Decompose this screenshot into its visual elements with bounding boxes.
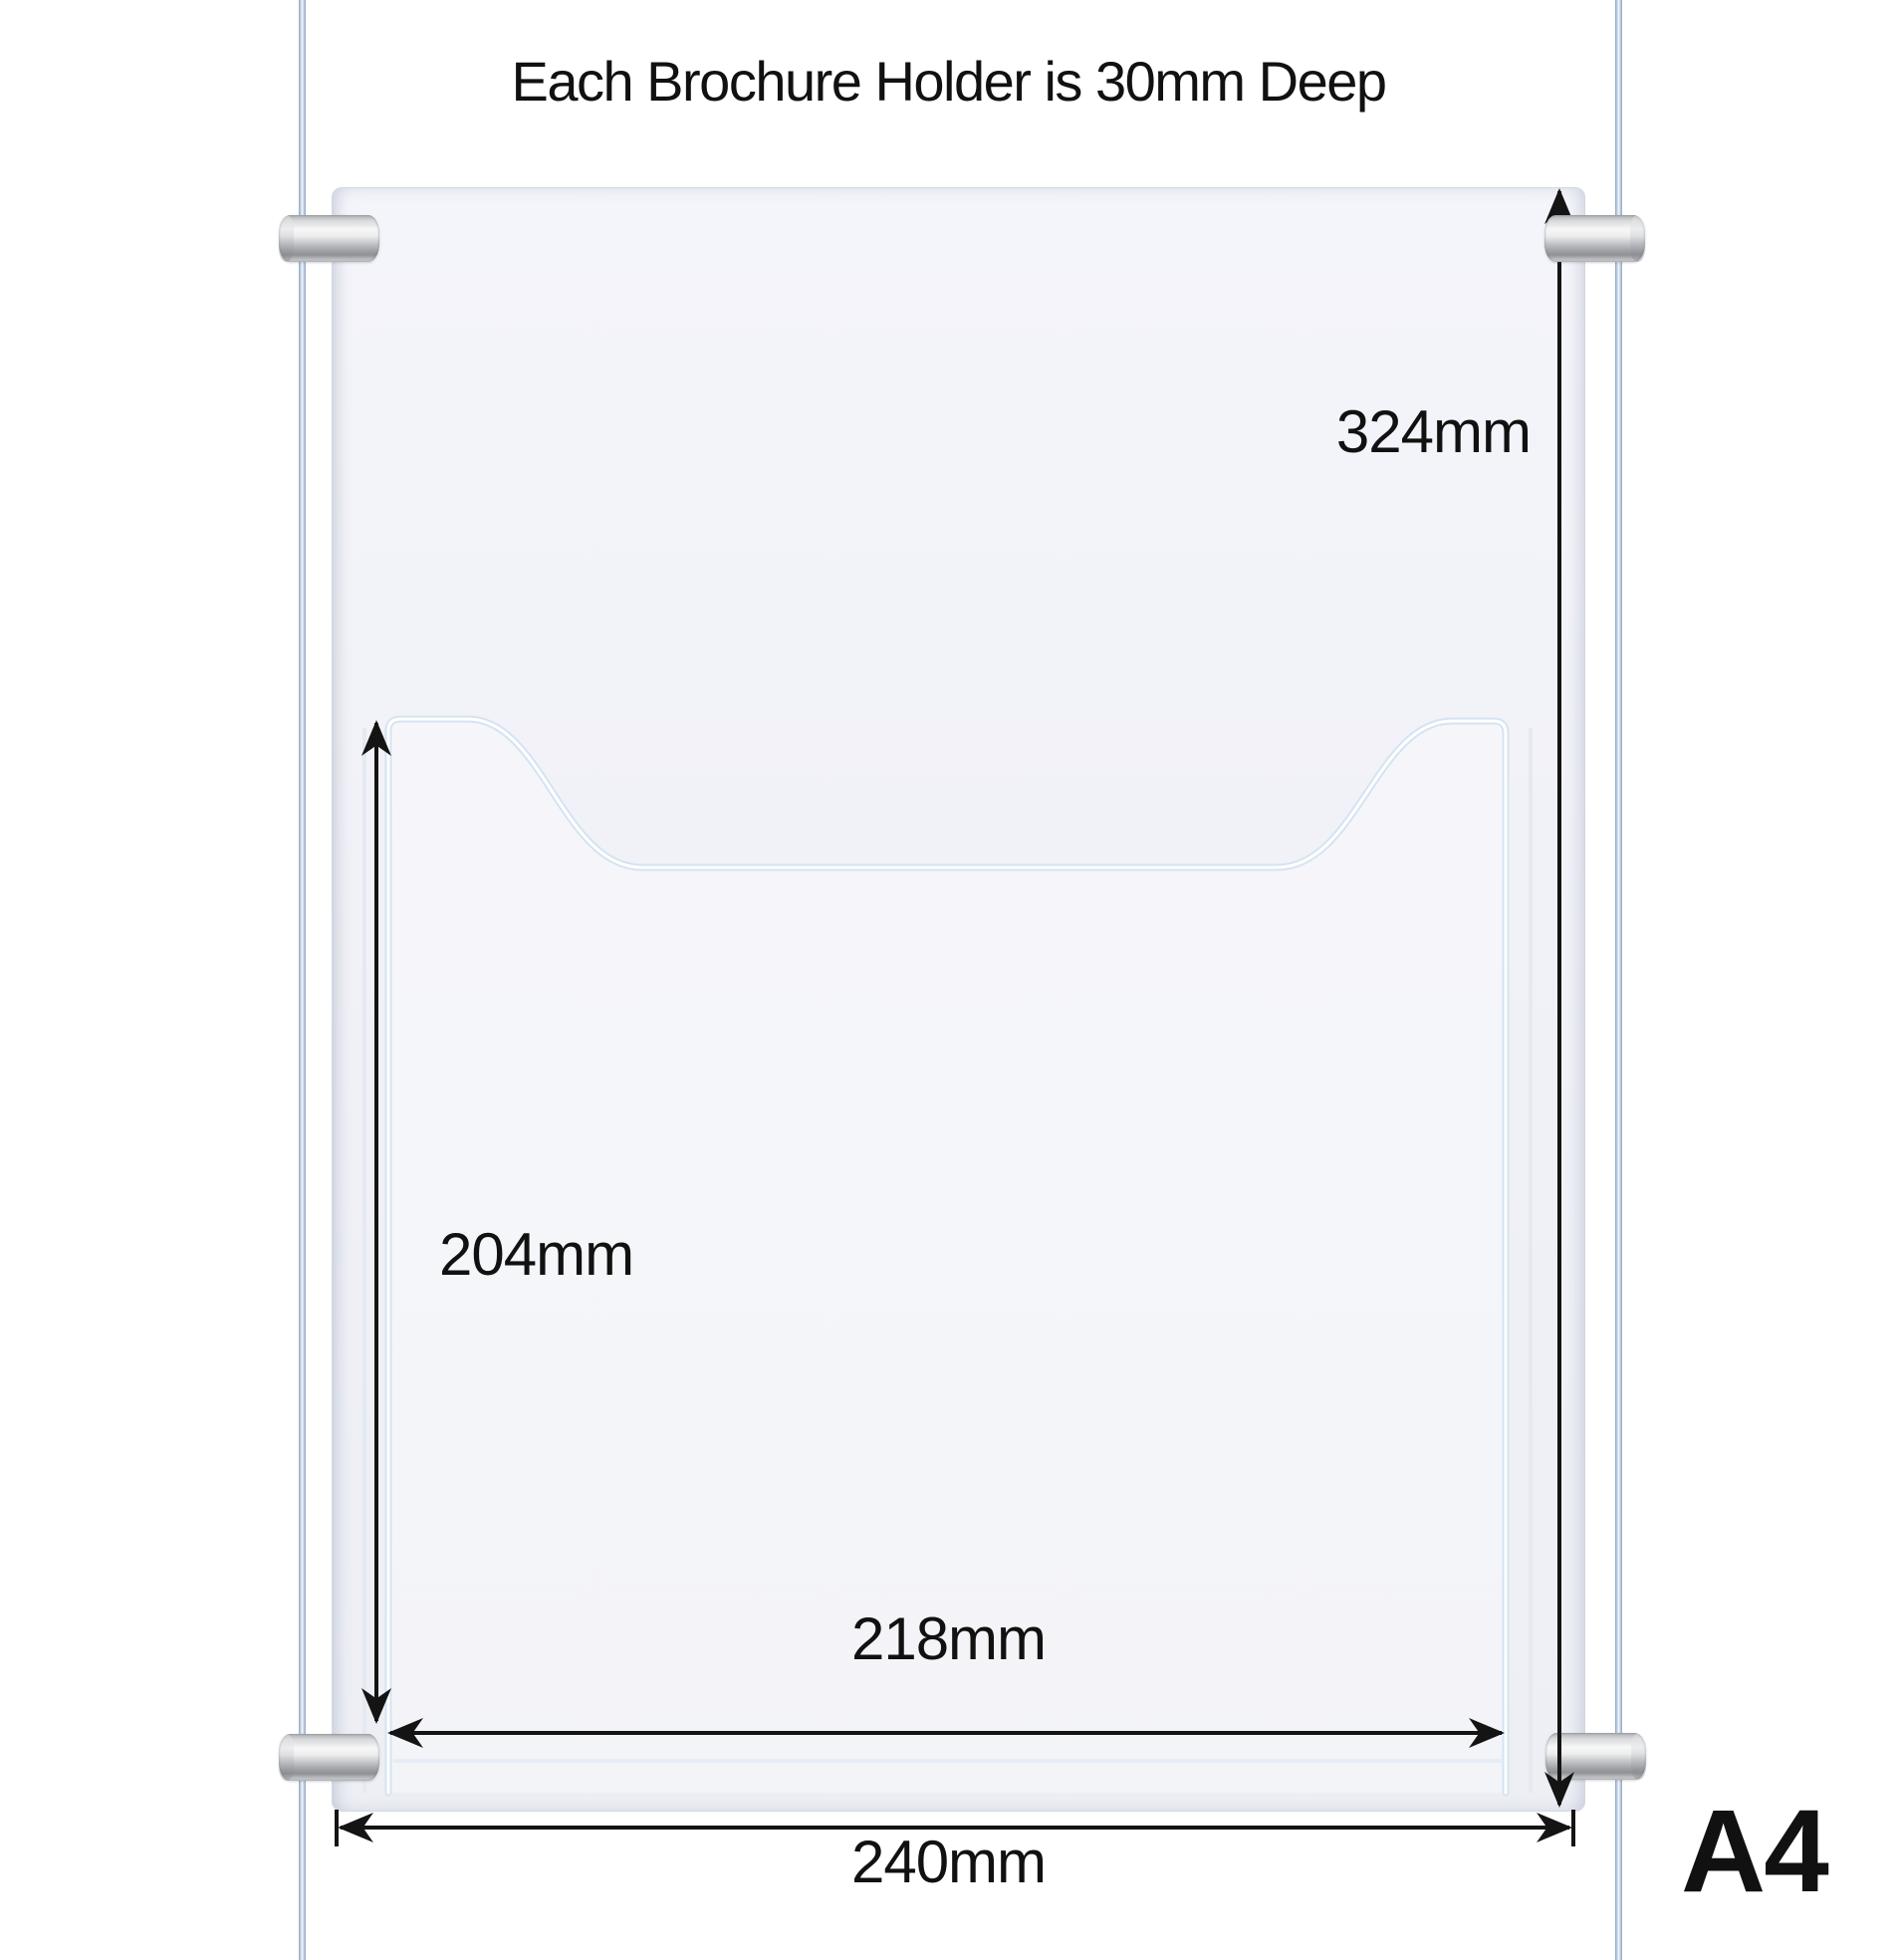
- dimension-label-pocket-height: 204mm: [439, 1225, 633, 1285]
- cable-gripper-top-right: [1544, 215, 1645, 262]
- page-title: Each Brochure Holder is 30mm Deep: [0, 54, 1897, 110]
- cable-gripper-top-left: [279, 215, 379, 262]
- dimension-label-panel-height: 324mm: [1336, 402, 1531, 462]
- size-badge: A4: [1681, 1793, 1827, 1910]
- diagram-canvas: Each Brochure Holder is 30mm Deep 324mm …: [0, 0, 1897, 1960]
- dimension-label-pocket-width: 218mm: [0, 1609, 1897, 1669]
- dimension-label-panel-width: 240mm: [0, 1833, 1897, 1892]
